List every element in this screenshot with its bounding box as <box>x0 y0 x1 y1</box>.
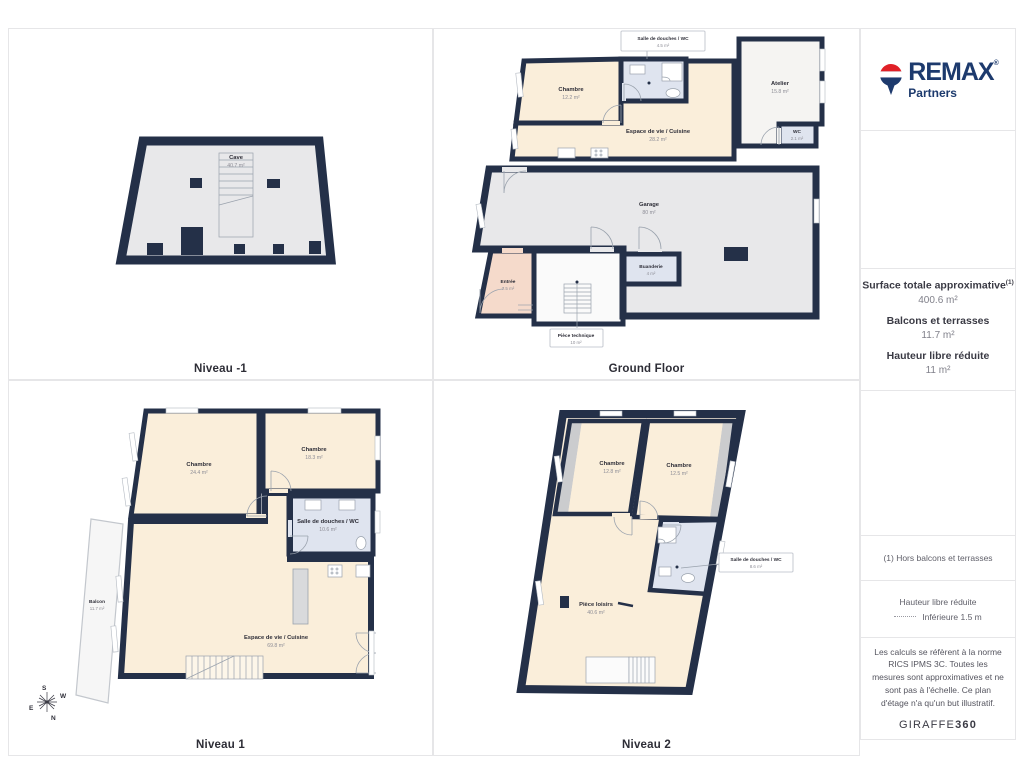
svg-text:Cave: Cave <box>229 155 244 161</box>
pillar <box>267 179 280 188</box>
svg-text:WC: WC <box>793 129 802 135</box>
callout-salle-de-douches-gf: Salle de douches / WC 4.5 m² <box>621 31 705 51</box>
footnote-section: (1) Hors balcons et terrasses <box>861 536 1015 581</box>
pillar <box>560 596 569 608</box>
svg-text:S: S <box>42 685 47 692</box>
info-sidebar: REMAX® Partners Surface totale approxima… <box>860 28 1016 740</box>
svg-text:Salle de douches / WC: Salle de douches / WC <box>297 519 360 525</box>
svg-text:Garage: Garage <box>639 202 660 208</box>
svg-text:80 m²: 80 m² <box>642 210 656 216</box>
svg-text:Chambre: Chambre <box>558 87 584 93</box>
svg-text:4.5 m²: 4.5 m² <box>657 43 670 48</box>
floor-plan-niveau-minus-1: Cave 40.7 m² <box>9 29 432 379</box>
stat-hauteur: Hauteur libre réduite 11 m² <box>887 350 990 376</box>
giraffe360-watermark: GIRAFFE360 <box>899 719 977 731</box>
svg-text:Atelier: Atelier <box>771 81 790 87</box>
svg-text:Pièce loisirs: Pièce loisirs <box>579 602 613 608</box>
svg-text:12.5 m²: 12.5 m² <box>670 471 688 477</box>
floorplan-sheet: Cave 40.7 m² Niveau -1 <box>0 0 1024 768</box>
floor-plan-niveau-2: Salle de douches / WC 8.6 m² Chambre 12.… <box>434 381 859 755</box>
svg-text:Salle de douches / WC: Salle de douches / WC <box>730 557 782 563</box>
stat-balcons: Balcons et terrasses 11.7 m² <box>887 315 990 341</box>
panel-niveau-1: S W E N Chambre 24.4 m² Chambre 18.3 m² … <box>8 380 433 756</box>
pillar <box>190 178 202 188</box>
svg-text:69.8 m²: 69.8 m² <box>267 643 285 649</box>
panel-niveau-2: Salle de douches / WC 8.6 m² Chambre 12.… <box>433 380 860 756</box>
svg-text:12.2 m²: 12.2 m² <box>562 95 580 101</box>
svg-text:4 m²: 4 m² <box>647 271 656 276</box>
svg-text:Chambre: Chambre <box>599 461 625 467</box>
sidebar-spacer <box>861 391 1015 536</box>
svg-text:Chambre: Chambre <box>186 462 212 468</box>
panel-title-ground-floor: Ground Floor <box>434 363 859 375</box>
svg-text:Chambre: Chambre <box>666 463 692 469</box>
callout-salle-de-douches-n2: Salle de douches / WC 8.6 m² <box>719 553 793 572</box>
sidebar-spacer <box>861 131 1015 269</box>
svg-text:18.3 m²: 18.3 m² <box>305 455 323 461</box>
svg-text:2.1 m²: 2.1 m² <box>791 136 804 141</box>
svg-text:11.7 m²: 11.7 m² <box>90 606 105 611</box>
remax-wordmark: REMAX® <box>908 60 997 85</box>
svg-text:E: E <box>29 705 34 712</box>
svg-text:10.6 m²: 10.6 m² <box>319 527 337 533</box>
svg-text:24.4 m²: 24.4 m² <box>190 470 208 476</box>
compass: S W E N <box>29 685 67 722</box>
surface-stats: Surface totale approximative(1) 400.6 m²… <box>861 269 1015 391</box>
svg-text:Salle de douches / WC: Salle de douches / WC <box>637 36 689 42</box>
svg-text:Pièce technique: Pièce technique <box>558 333 595 339</box>
panel-title-niveau-minus-1: Niveau -1 <box>9 363 432 375</box>
svg-text:Espace de vie / Cuisine: Espace de vie / Cuisine <box>626 129 691 135</box>
stat-surface-totale: Surface totale approximative(1) 400.6 m² <box>862 279 1014 306</box>
panel-ground-floor: Salle de douches / WC 4.5 m² Pièce techn… <box>433 28 860 380</box>
remax-subbrand: Partners <box>908 86 997 100</box>
floor-plan-ground-floor: Salle de douches / WC 4.5 m² Pièce techn… <box>434 29 859 379</box>
svg-text:12.8 m²: 12.8 m² <box>603 469 621 475</box>
svg-text:28.2 m²: 28.2 m² <box>649 137 667 143</box>
callout-piece-technique: Pièce technique 10 m² <box>550 329 603 347</box>
panel-title-niveau-1: Niveau 1 <box>9 739 432 751</box>
svg-text:N: N <box>51 715 56 722</box>
remax-balloon-icon <box>878 63 904 97</box>
remax-logo: REMAX® Partners <box>861 29 1015 131</box>
svg-text:Chambre: Chambre <box>301 447 327 453</box>
svg-text:10 m²: 10 m² <box>570 340 582 345</box>
legend-section: Hauteur libre réduite Inférieure 1.5 m <box>861 581 1015 638</box>
panel-niveau-minus-1: Cave 40.7 m² Niveau -1 <box>8 28 433 380</box>
svg-text:Espace de vie / Cuisine: Espace de vie / Cuisine <box>244 635 309 641</box>
svg-text:7.5 m²: 7.5 m² <box>502 286 515 291</box>
svg-text:Entrée: Entrée <box>501 279 516 285</box>
svg-text:40.6 m²: 40.6 m² <box>587 610 605 616</box>
dotted-line-sample <box>894 616 916 617</box>
svg-text:15.8 m²: 15.8 m² <box>771 89 789 95</box>
svg-text:8.6 m²: 8.6 m² <box>750 564 763 569</box>
floor-plan-niveau-1: S W E N Chambre 24.4 m² Chambre 18.3 m² … <box>9 381 432 755</box>
svg-text:40.7 m²: 40.7 m² <box>227 163 245 169</box>
disclaimer-section: Les calculs se réfèrent à la norme RICS … <box>861 638 1015 739</box>
panel-title-niveau-2: Niveau 2 <box>434 739 859 751</box>
svg-text:Buanderie: Buanderie <box>639 264 663 270</box>
svg-text:W: W <box>60 693 67 700</box>
svg-text:Balcon: Balcon <box>89 599 105 605</box>
pillar <box>724 247 748 261</box>
